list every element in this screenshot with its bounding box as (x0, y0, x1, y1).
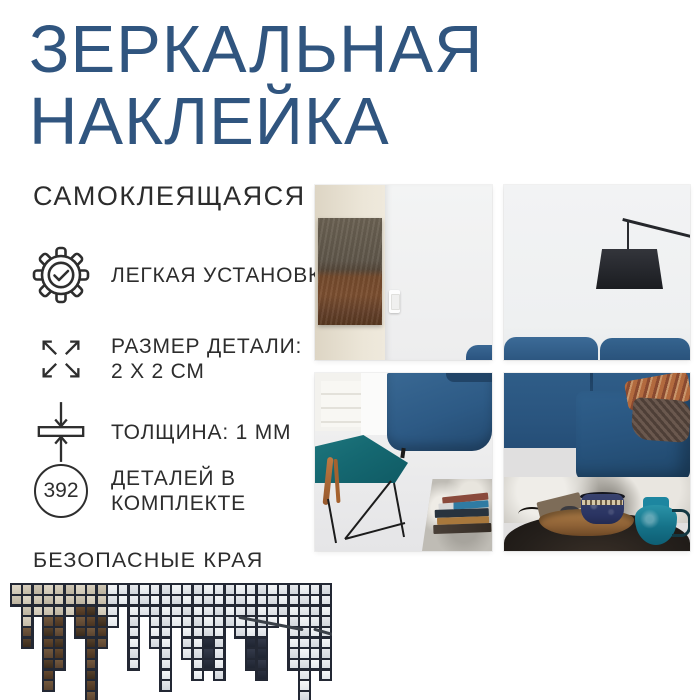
cup-pattern-band (582, 500, 623, 505)
lamp-shade (596, 249, 663, 289)
thickness-icon (30, 400, 92, 464)
feature-detail-size: РАЗМЕР ДЕТАЛИ: 2 Х 2 СМ (30, 327, 302, 391)
page-title: ЗЕРКАЛЬНАЯ НАКЛЕЙКА (29, 14, 669, 158)
product-photo-top-left (315, 185, 492, 360)
sofa-back-cushion (504, 337, 598, 360)
feature-easy-installation: ЛЕГКАЯ УСТАНОВКА (30, 243, 336, 307)
book-stack (432, 494, 492, 544)
gear-check-icon (30, 243, 92, 307)
sofa-corner (466, 345, 492, 360)
expand-arrows-icon (30, 327, 92, 391)
textured-throw (631, 397, 690, 443)
product-photo-top-right (504, 185, 690, 360)
pitcher-handle (672, 509, 690, 537)
blue-speckled-cup (581, 494, 624, 524)
light-switch-rocker (391, 294, 400, 310)
count-badge-number: 392 (34, 464, 88, 518)
feature-label-thickness: ТОЛЩИНА: 1 ММ (111, 420, 291, 445)
subtitle: САМОКЛЕЯЩАЯСЯ (33, 181, 306, 212)
feature-label-pieces-count: ДЕТАЛЕЙ В КОМПЛЕКТЕ (111, 466, 246, 516)
light-switch (389, 290, 400, 313)
product-photo-bottom-right (504, 373, 690, 551)
count-badge: 392 (30, 459, 92, 523)
rust-artwork (318, 218, 382, 325)
book (433, 523, 491, 534)
lamp-rod (627, 220, 629, 252)
feature-thickness: ТОЛЩИНА: 1 ММ (30, 400, 291, 464)
product-card: ЗЕРКАЛЬНАЯ НАКЛЕЙКА САМОКЛЕЯЩАЯСЯ (0, 0, 700, 700)
feature-label-detail-size: РАЗМЕР ДЕТАЛИ: 2 Х 2 СМ (111, 334, 302, 384)
lamp-arm (622, 218, 690, 238)
feature-pieces-count: 392 ДЕТАЛЕЙ В КОМПЛЕКТЕ (30, 459, 246, 523)
feature-label-easy-installation: ЛЕГКАЯ УСТАНОВКА (111, 263, 336, 288)
sofa-back-cushion (600, 338, 690, 360)
product-photo-bottom-left (315, 373, 492, 551)
white-wall (385, 185, 492, 360)
safe-edges-label: БЕЗОПАСНЫЕ КРАЯ (33, 548, 263, 573)
mosaic-pattern (10, 583, 332, 700)
